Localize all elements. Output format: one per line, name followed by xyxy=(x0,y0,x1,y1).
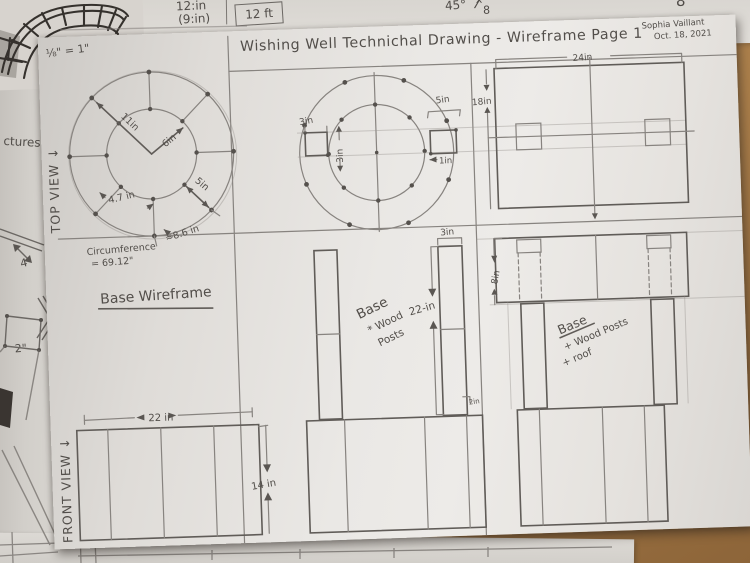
plan-post-width-label: 3in xyxy=(299,116,314,128)
dim-4in-label: 4" xyxy=(19,255,34,271)
posts-detail-dim-label: 2in xyxy=(468,397,480,406)
side-width-label: 24in xyxy=(572,53,592,64)
dim-2in-label: 2" xyxy=(14,342,27,356)
plan-post-inset-label: 1in xyxy=(439,156,452,166)
corner-page-number: 8 xyxy=(676,0,686,10)
sheet-line-art: Wishing Well Technichal Drawing - Wirefr… xyxy=(38,15,750,550)
front-height-label: 14 in xyxy=(250,478,277,493)
main-drawing-sheet: Wishing Well Technichal Drawing - Wirefr… xyxy=(38,15,750,550)
roof-elevation-drawing: 8in Base + Wood Posts + roof xyxy=(477,230,750,527)
divider-line xyxy=(226,0,227,24)
outer-radius-label: 11in xyxy=(118,111,141,133)
cropped-word-label: ctures: xyxy=(3,134,45,150)
page-title: Wishing Well Technichal Drawing - Wirefr… xyxy=(240,26,643,55)
posts-width-label: 3in xyxy=(440,227,455,238)
side-view-drawing: 24in 18in xyxy=(470,49,697,223)
fraction-denominator: 8 xyxy=(483,4,490,17)
plan-view-ring-drawing: 3in 3in 5in 1in xyxy=(295,62,689,234)
roof-height-label: 8in xyxy=(490,270,502,285)
base-wireframe-caption: Base Wireframe xyxy=(100,284,212,308)
fraction-slash: ⁄ xyxy=(477,0,480,13)
circumference-label-line2: = 69.12" xyxy=(91,255,134,270)
ring-gap-label: 5in xyxy=(193,175,211,193)
plan-post-height-label: 3in xyxy=(336,149,346,163)
plan-ring-span-label: 5in xyxy=(435,95,450,107)
dim-9in-label: (9:in) xyxy=(178,11,211,27)
scale-note: ⅛" = 1" xyxy=(45,41,90,60)
posts-elevation-drawing: 22-in 3in Base * Wood Posts 2in xyxy=(300,227,486,533)
boxed-12ft-label: 12 ft xyxy=(234,1,283,26)
drawing-date: Oct. 18, 2021 xyxy=(654,28,712,42)
posts-height-label: 22-in xyxy=(408,300,437,319)
front-view-label: FRONT VIEW ↓ xyxy=(57,437,75,543)
side-height-label: 18in xyxy=(472,97,492,109)
top-view-label: TOP VIEW ↓ xyxy=(45,147,63,234)
front-view-base-drawing: 22 in 14 in xyxy=(76,407,278,541)
top-view-ring-drawing: 11in 6in 5in 4.7 in ≈8.6 in Circumferenc… xyxy=(64,67,241,313)
sheet-grid-lines xyxy=(52,20,750,549)
angle-45-label: 45° xyxy=(444,0,466,13)
photo-of-technical-drawing: ctures: 4" 2" 12:in (9:in) 12 ft 45° x ⁄… xyxy=(0,0,750,563)
inner-arc-label: 4.7 in xyxy=(107,189,136,206)
